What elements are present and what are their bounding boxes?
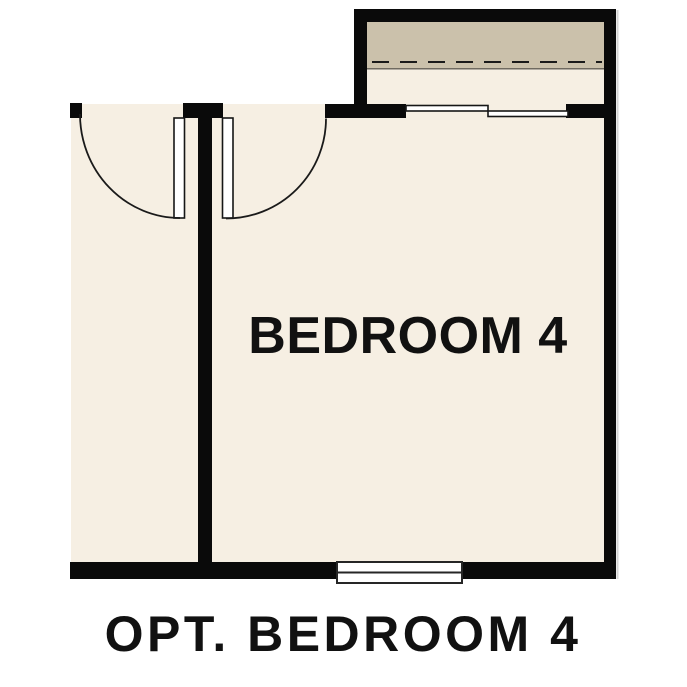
- top-wall-segment-left: [325, 104, 406, 118]
- right-exterior-wall: [604, 9, 616, 579]
- left-door-panel: [174, 118, 185, 218]
- right-door-panel: [223, 118, 234, 218]
- top-wall-segment-right: [566, 104, 604, 118]
- lower-window: [488, 111, 568, 117]
- room-label: BEDROOM 4: [248, 306, 567, 366]
- entry-center-post: [183, 103, 223, 118]
- plan-caption: OPT. BEDROOM 4: [105, 605, 582, 663]
- bay-left-wall: [354, 9, 367, 118]
- bay-top-wall: [354, 9, 616, 22]
- floorplan-canvas: BEDROOM 4 OPT. BEDROOM 4: [0, 0, 687, 687]
- interior-divider-wall: [198, 117, 212, 563]
- upper-window: [406, 106, 488, 112]
